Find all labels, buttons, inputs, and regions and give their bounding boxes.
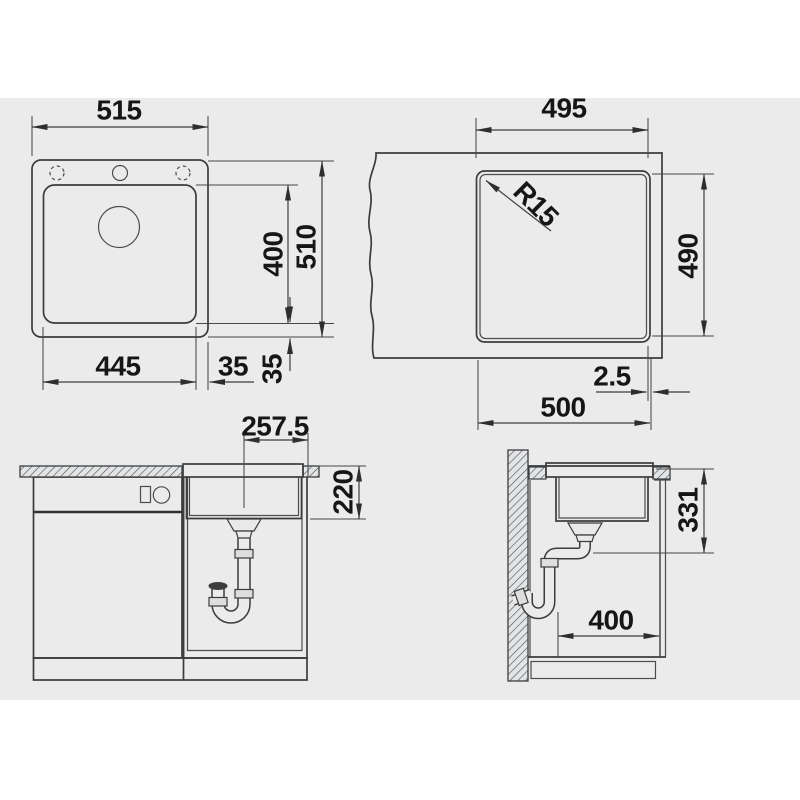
dim-label-cutout-length: 490 (673, 233, 704, 278)
dim-label-bowl-length: 400 (258, 231, 289, 276)
dim-label-rim-offset: 2.5 (593, 361, 630, 392)
pipe-nut-side-1 (541, 559, 558, 568)
drawing-canvas (0, 98, 800, 700)
pipe-nut-3 (209, 598, 227, 607)
countertop-section-left (20, 466, 182, 477)
pipe-nut-1 (235, 550, 253, 559)
dim-label-bowl-width: 445 (95, 351, 140, 382)
countertop-section-right (303, 466, 319, 477)
drain-neck (236, 531, 252, 538)
countertop-section-back (529, 467, 546, 479)
drain-neck-side (576, 535, 594, 542)
wall-section (508, 450, 528, 681)
dim-label-bowl-depth: 220 (328, 469, 359, 514)
sink-dimension-drawing: 515 445 35 400 510 35 (0, 0, 800, 800)
dim-label-cutout-width-bottom: 500 (540, 392, 585, 423)
pipe-nut-2 (235, 590, 253, 599)
dim-label-overall-width: 515 (96, 95, 141, 126)
dim-label-cutout-width-top: 495 (541, 93, 586, 124)
dim-label-overall-length: 510 (291, 224, 322, 269)
dim-label-right-margin: 35 (218, 351, 248, 382)
dim-label-outlet-height: 331 (673, 487, 704, 532)
dim-label-wall-clearance: 400 (588, 605, 633, 636)
technical-drawing-page: 515 445 35 400 510 35 (0, 0, 800, 800)
trap-cap (209, 582, 228, 590)
dim-label-center-to-edge: 257.5 (241, 411, 309, 442)
dim-label-bottom-margin: 35 (257, 354, 288, 384)
